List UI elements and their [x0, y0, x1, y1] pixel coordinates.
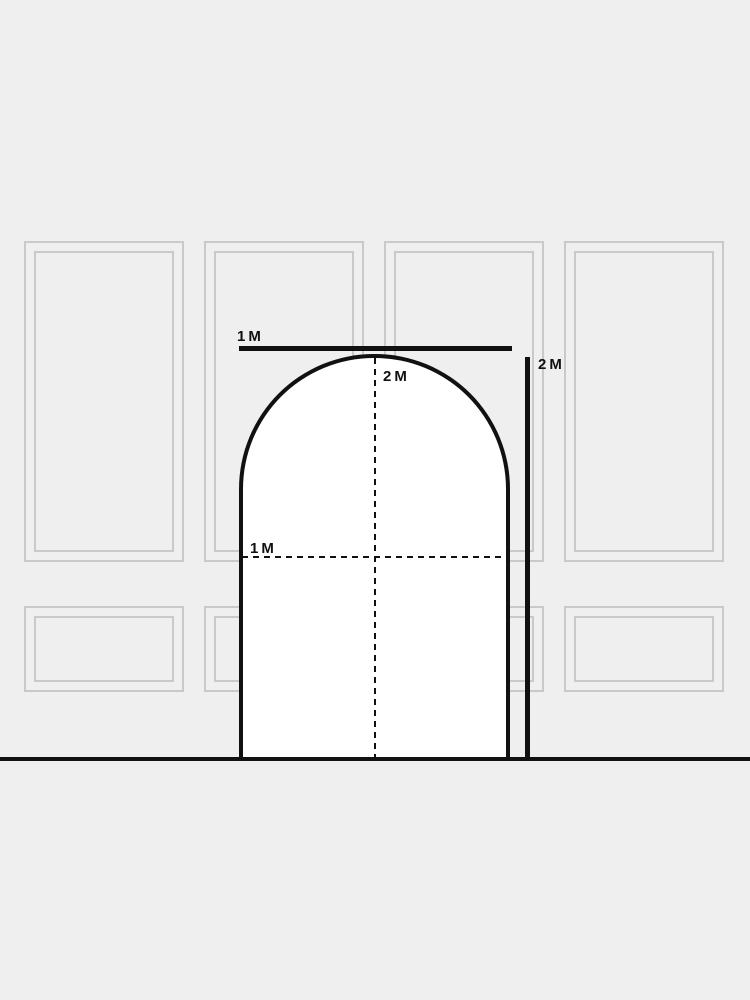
width-dimension-line	[239, 346, 512, 351]
door-height-label: 2M	[383, 369, 410, 384]
door-width-label: 1M	[237, 329, 264, 344]
wall-panel-upper-1	[24, 241, 184, 562]
wall-panel-lower-1	[24, 606, 184, 692]
height-dimension-line	[525, 357, 530, 759]
half-height-label: 1M	[250, 541, 277, 556]
horizontal-half-height-guideline	[242, 556, 508, 558]
side-height-label: 2M	[538, 357, 565, 372]
wall-panel-lower-4	[564, 606, 724, 692]
architectural-elevation-diagram: 1M 2M 2M 1M	[0, 0, 750, 1000]
wall-panel-upper-4	[564, 241, 724, 562]
vertical-centerline	[374, 358, 376, 759]
